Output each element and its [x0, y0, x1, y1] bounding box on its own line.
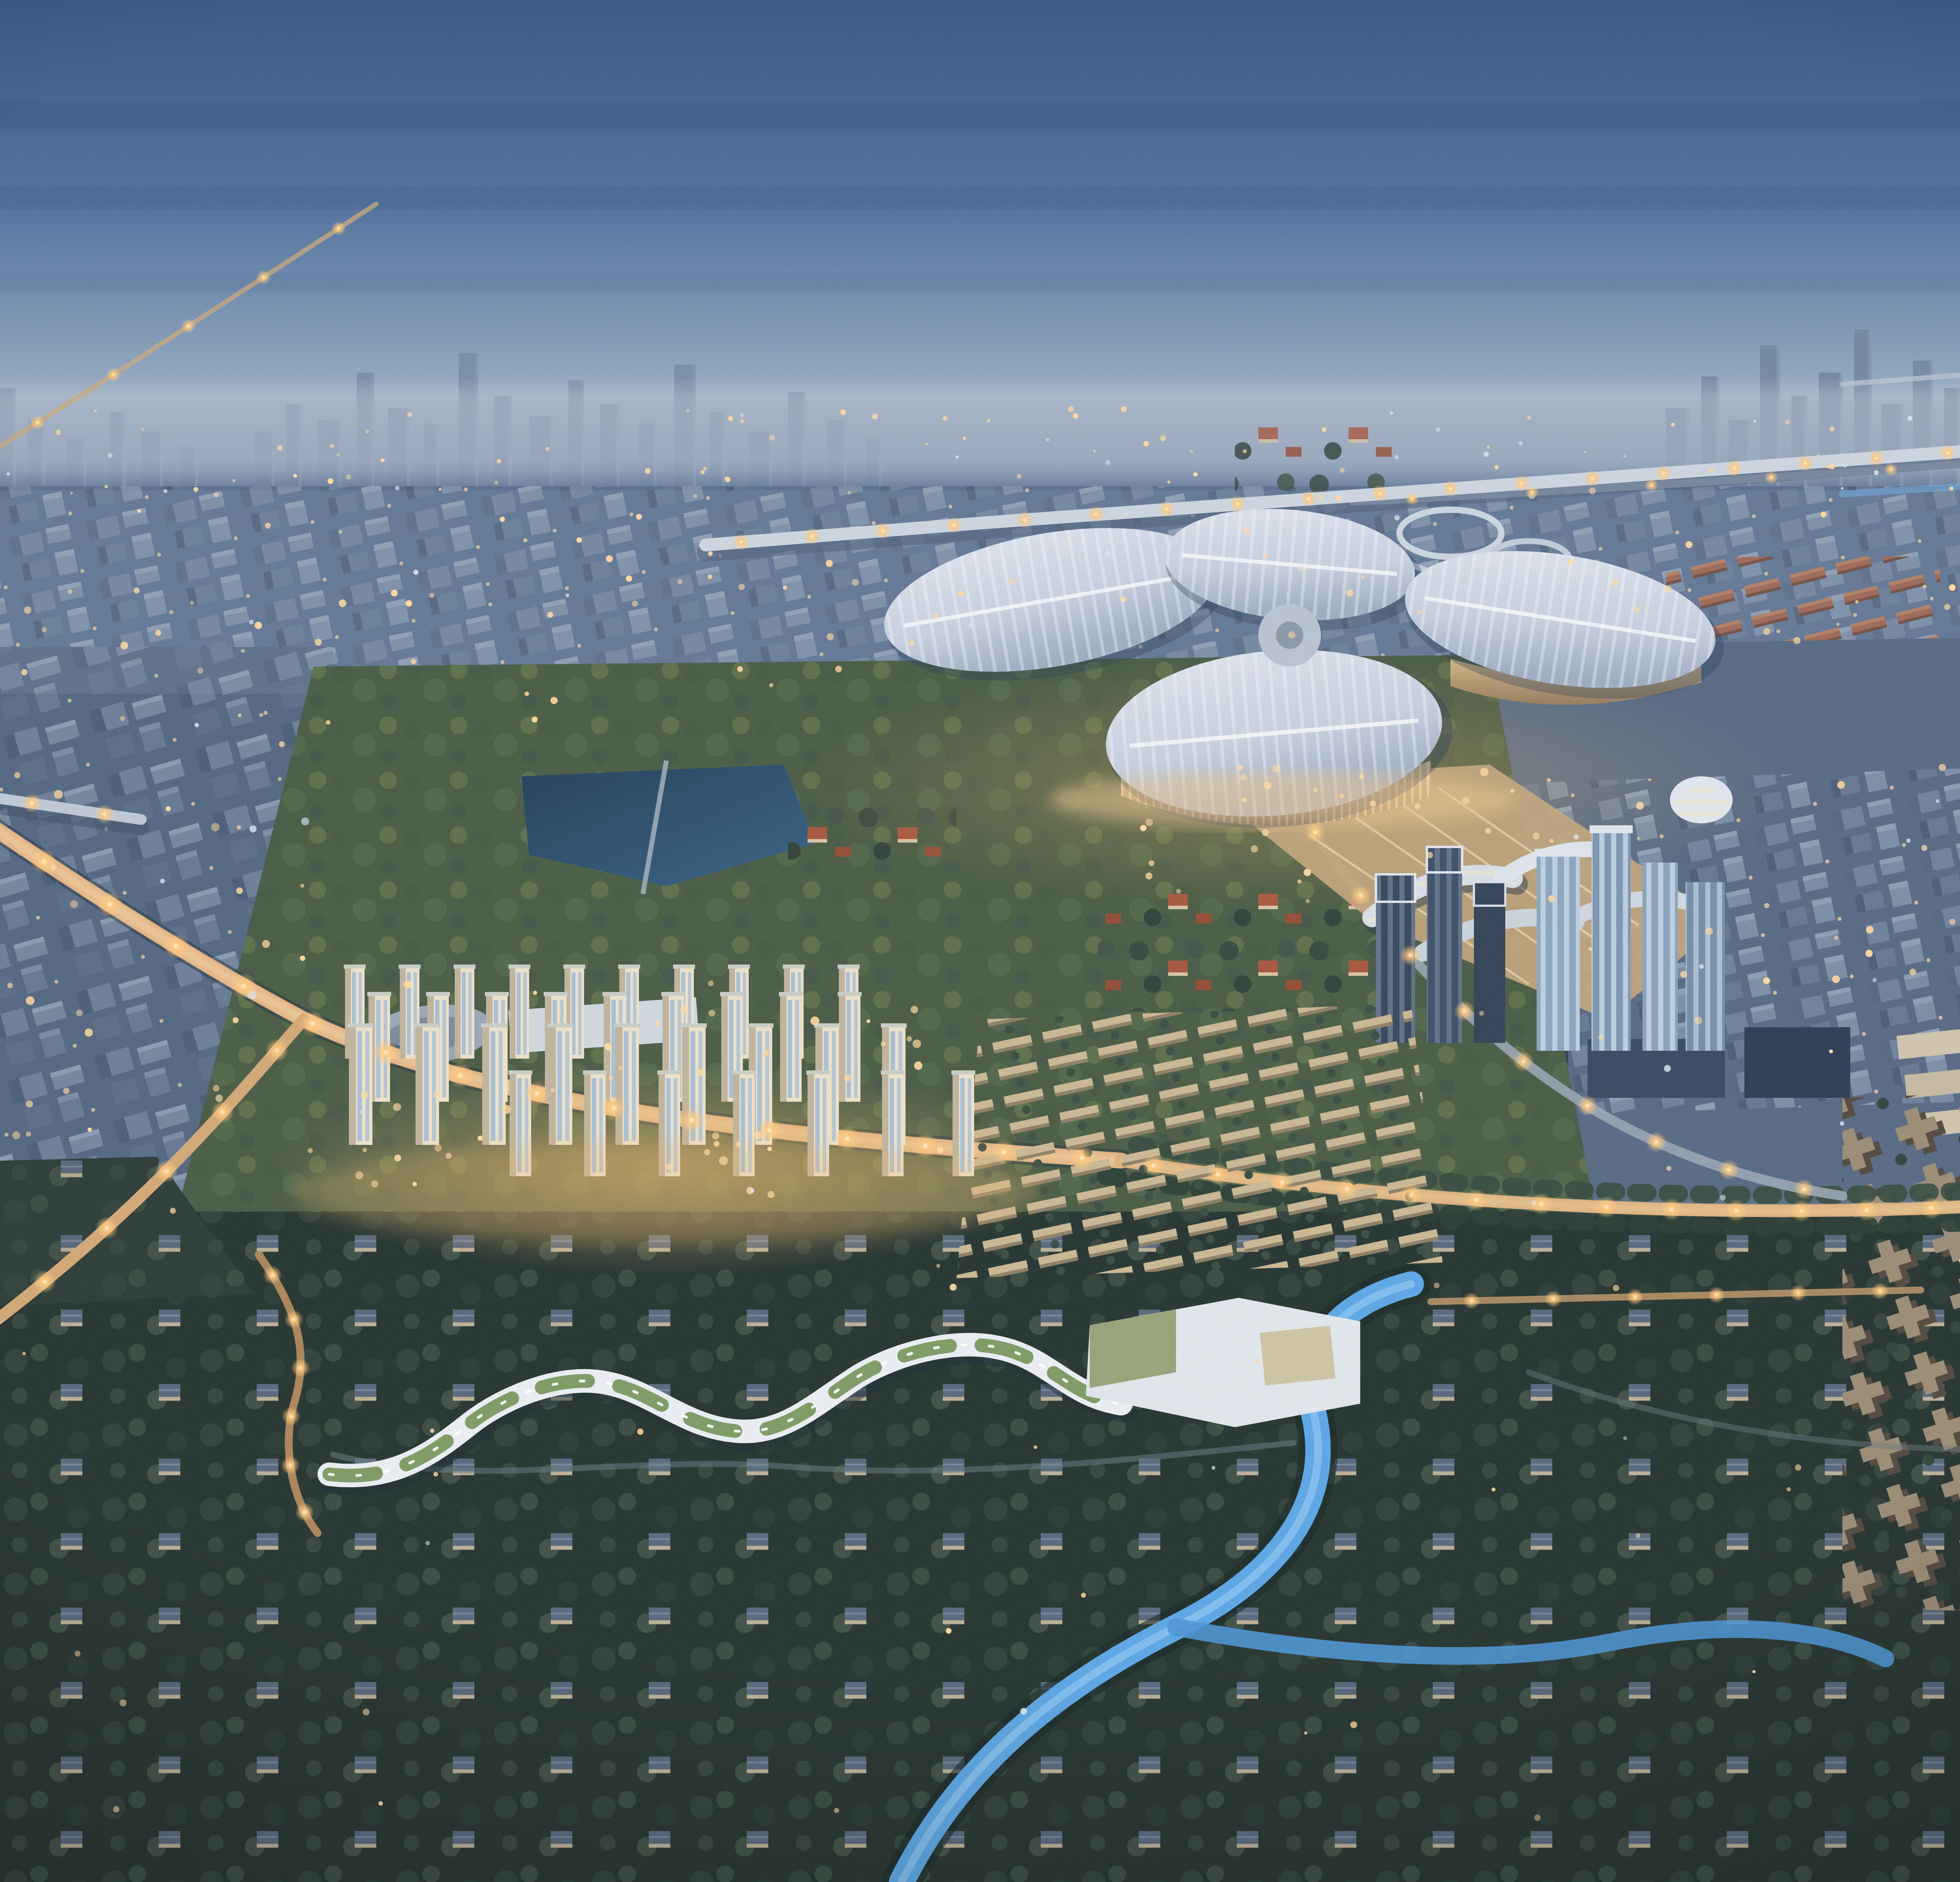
render-canvas — [0, 0, 1960, 1882]
vignette — [0, 0, 1960, 1882]
aerial-cityscape-render — [0, 0, 1960, 1882]
